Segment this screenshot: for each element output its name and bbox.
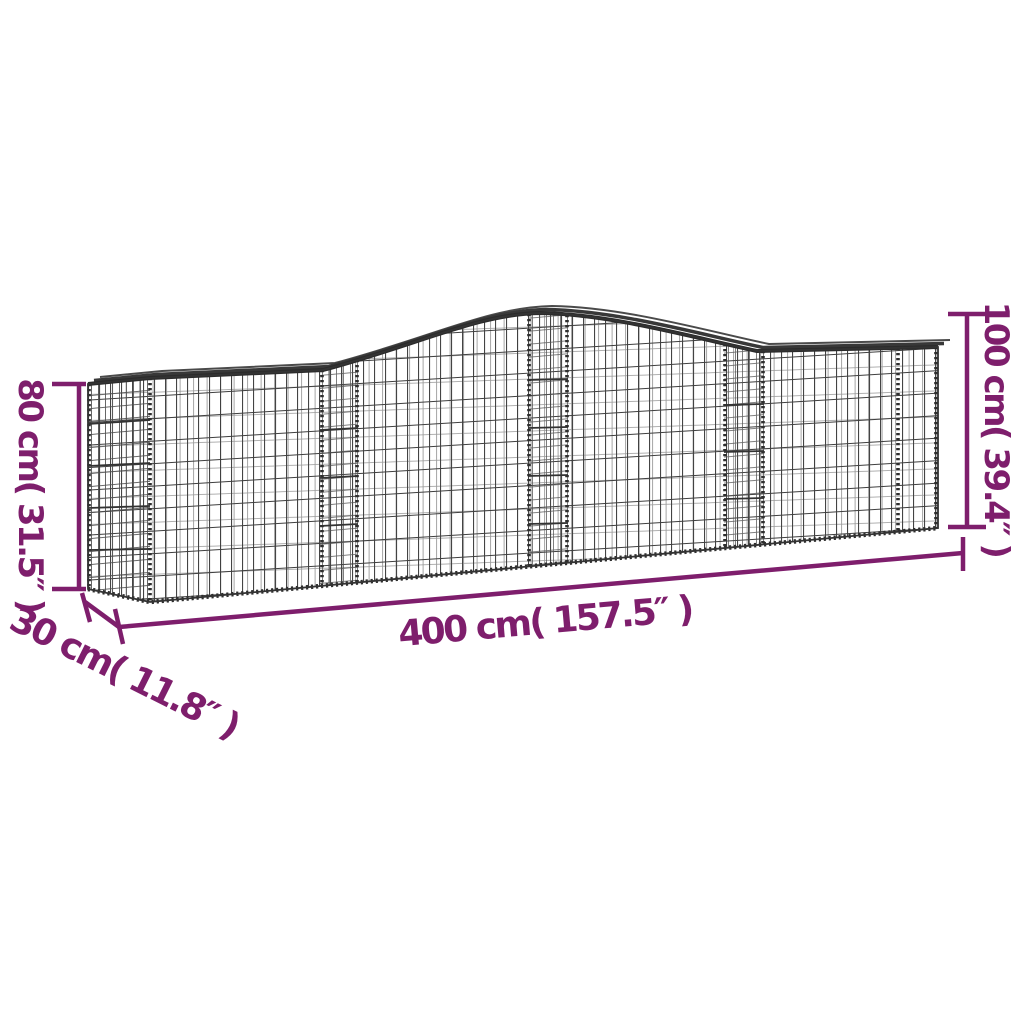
dimension-label-height-right: 100 cm( 39.4″ ) bbox=[976, 302, 1016, 557]
gabion-side-face bbox=[88, 370, 150, 610]
product-dimension-diagram: 80 cm( 31.5″ ) 30 cm( 11.8″ ) 400 cm( 15… bbox=[0, 0, 1024, 1024]
gabion-basket-illustration bbox=[0, 0, 1024, 1024]
dimension-label-height-left: 80 cm( 31.5″ ) bbox=[10, 378, 50, 612]
dimension-line-height-left bbox=[52, 384, 86, 589]
